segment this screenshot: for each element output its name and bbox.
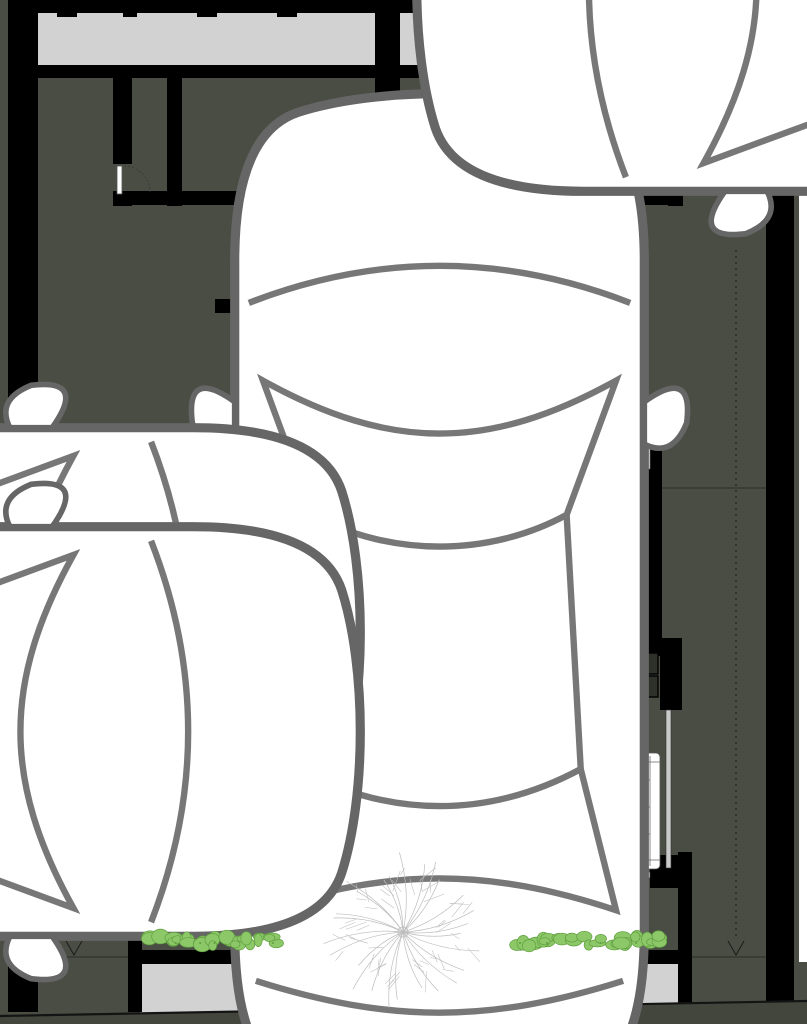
parking-column <box>215 299 231 313</box>
down-arrow-icon <box>66 941 82 955</box>
right-driveway-centerline <box>728 250 744 955</box>
floor-plan-drawing <box>0 0 807 1024</box>
car-parked-2 <box>0 483 360 979</box>
right-living-window <box>666 710 671 868</box>
down-arrow-icon <box>728 941 744 955</box>
floor-plan <box>0 0 807 1024</box>
top-boundary-wall <box>8 0 435 13</box>
